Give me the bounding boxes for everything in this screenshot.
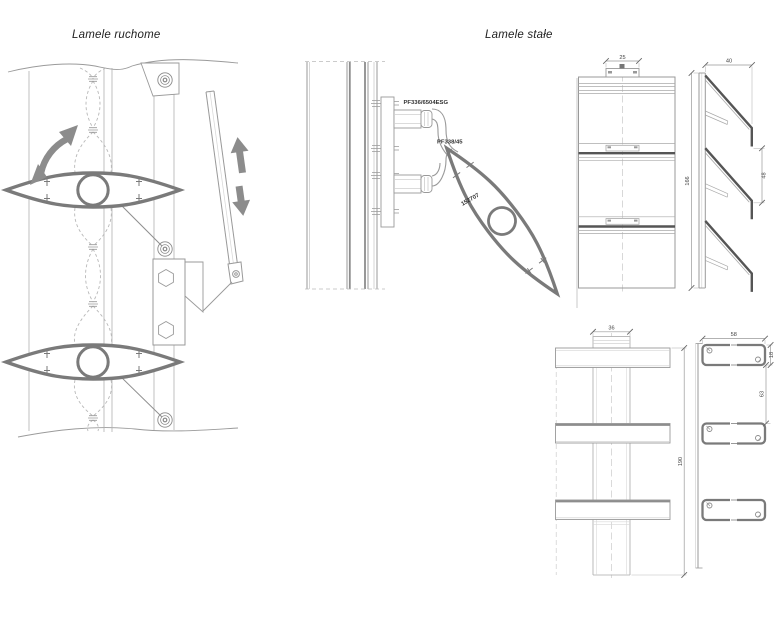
panel-section-lines (579, 84, 676, 234)
move-up-arrow-icon (229, 136, 252, 174)
technical-drawing-canvas: PF336/6504ESG PF338/45 152707 (0, 0, 776, 624)
horizontal-louvre-front-view: 36 190 (556, 325, 688, 578)
angled-blade-section (705, 148, 752, 219)
dim-total-height: 190 (632, 345, 688, 578)
tab-fastener-icon (633, 71, 637, 74)
pivot-glyph (88, 128, 98, 133)
dim-text-63: 63 (760, 391, 766, 397)
top-mount-bracket (141, 63, 179, 96)
label-profile-top: PF336/6504ESG (404, 100, 449, 106)
tab-fastener-icon (620, 64, 625, 69)
break-line-top (8, 60, 238, 72)
hex-bolt-icon (159, 322, 174, 339)
fixed-louvre-blade (433, 138, 571, 304)
dim-bar-gap: 63 (760, 362, 771, 426)
dim-text-40: 40 (726, 59, 732, 65)
dim-text-166: 166 (685, 176, 691, 185)
pivot-glyph (88, 245, 98, 250)
back-plate (699, 73, 705, 288)
dim-depth: 40 (703, 59, 755, 125)
louvre-bar (556, 424, 671, 444)
dim-text-58: 58 (731, 332, 737, 338)
tab-fastener-icon (608, 71, 612, 74)
dim-text-25: 25 (619, 55, 625, 61)
dim-text-36: 36 (608, 325, 614, 331)
drawing-sheet: Lamele ruchome Lamele stałe (0, 0, 776, 624)
louvre-bar (556, 500, 671, 520)
horizontal-louvre-side-view: 58 18 63 (696, 332, 776, 568)
pivot-glyph (88, 302, 98, 307)
louvre-bar-section (703, 499, 766, 522)
pivot-bolt-icon (158, 242, 172, 256)
tie-arm-upper (118, 202, 162, 246)
angled-blade-section (705, 221, 752, 292)
break-line-bottom (18, 428, 238, 437)
dim-bar-height: 18 (767, 342, 776, 368)
mounting-plate (381, 97, 394, 227)
panel-outline (579, 77, 676, 288)
move-down-arrow-icon (230, 185, 252, 217)
louvre-bar-section (703, 422, 766, 445)
pivot-glyph (88, 416, 98, 421)
louvre-bar (556, 348, 671, 368)
dim-blade-gap: 48 (754, 146, 768, 206)
dim-text-48: 48 (762, 172, 768, 178)
dim-height: 166 (685, 70, 701, 291)
fixed-louvre-attachment-drawing: PF336/6504ESG PF338/45 152707 (305, 62, 577, 309)
post-top (593, 337, 630, 349)
dim-text-18: 18 (769, 352, 775, 358)
bracket-stubs (394, 110, 432, 193)
angled-blade-section (705, 76, 752, 147)
label-profile-mid: PF338/45 (437, 140, 463, 146)
tie-arm-lower (118, 374, 162, 417)
movable-louvre-drawing (6, 60, 252, 437)
hex-bolt-icon (159, 270, 174, 287)
pivot-bolt-icon (158, 413, 172, 427)
fixed-louvre-side-view: 166 40 (685, 59, 768, 292)
pivot-glyph (88, 77, 98, 82)
louvre-bar-section (703, 344, 766, 367)
fixed-louvre-front-view: 25 (579, 55, 676, 292)
dim-bar-width: 58 (700, 332, 768, 344)
post-edge (696, 344, 703, 569)
link-rod (203, 282, 232, 311)
wall-bracket-plate (153, 259, 203, 345)
dim-text-190: 190 (678, 457, 684, 466)
